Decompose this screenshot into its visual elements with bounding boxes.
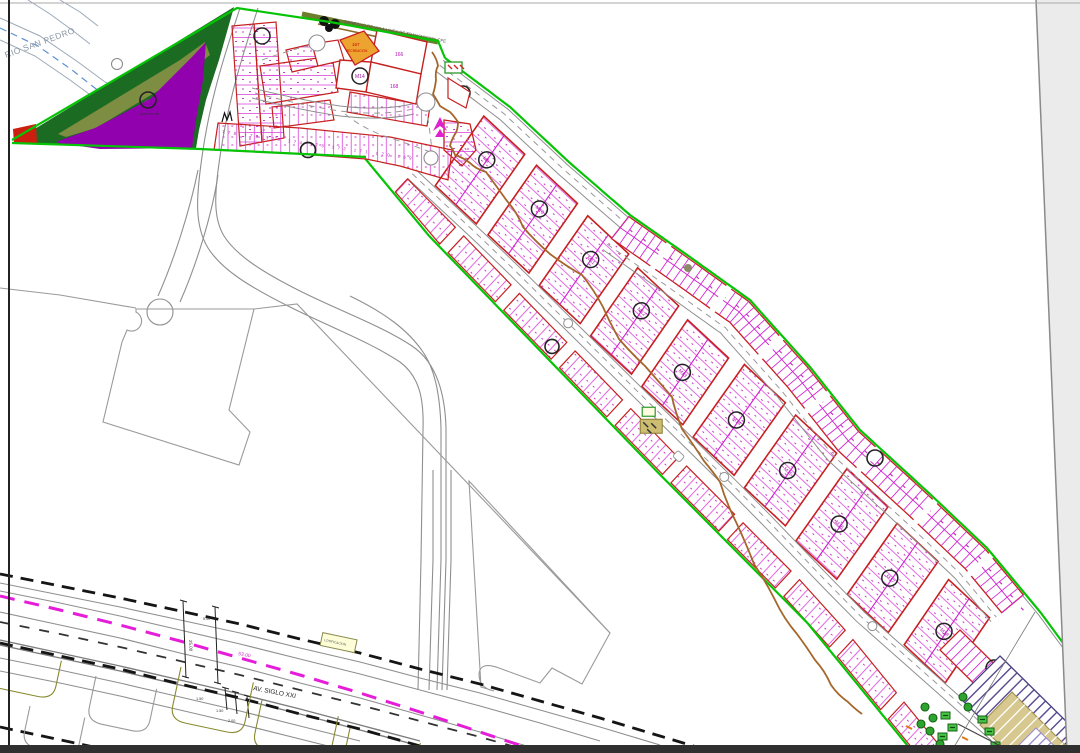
svg-text:2.00: 2.00 [228, 719, 235, 723]
svg-text:M14: M14 [355, 74, 365, 80]
svg-text:1.50: 1.50 [216, 709, 223, 713]
svg-text:168: 168 [390, 84, 399, 90]
svg-text:AV: AV [144, 99, 151, 105]
svg-text:RECREACION: RECREACION [346, 49, 368, 53]
svg-text:area verde: area verde [140, 111, 160, 116]
svg-text:166: 166 [395, 52, 404, 58]
svg-text:5.00: 5.00 [203, 617, 210, 621]
svg-text:1.50: 1.50 [196, 697, 203, 701]
svg-text:167: 167 [352, 42, 360, 47]
svg-text:25.00: 25.00 [188, 640, 193, 652]
